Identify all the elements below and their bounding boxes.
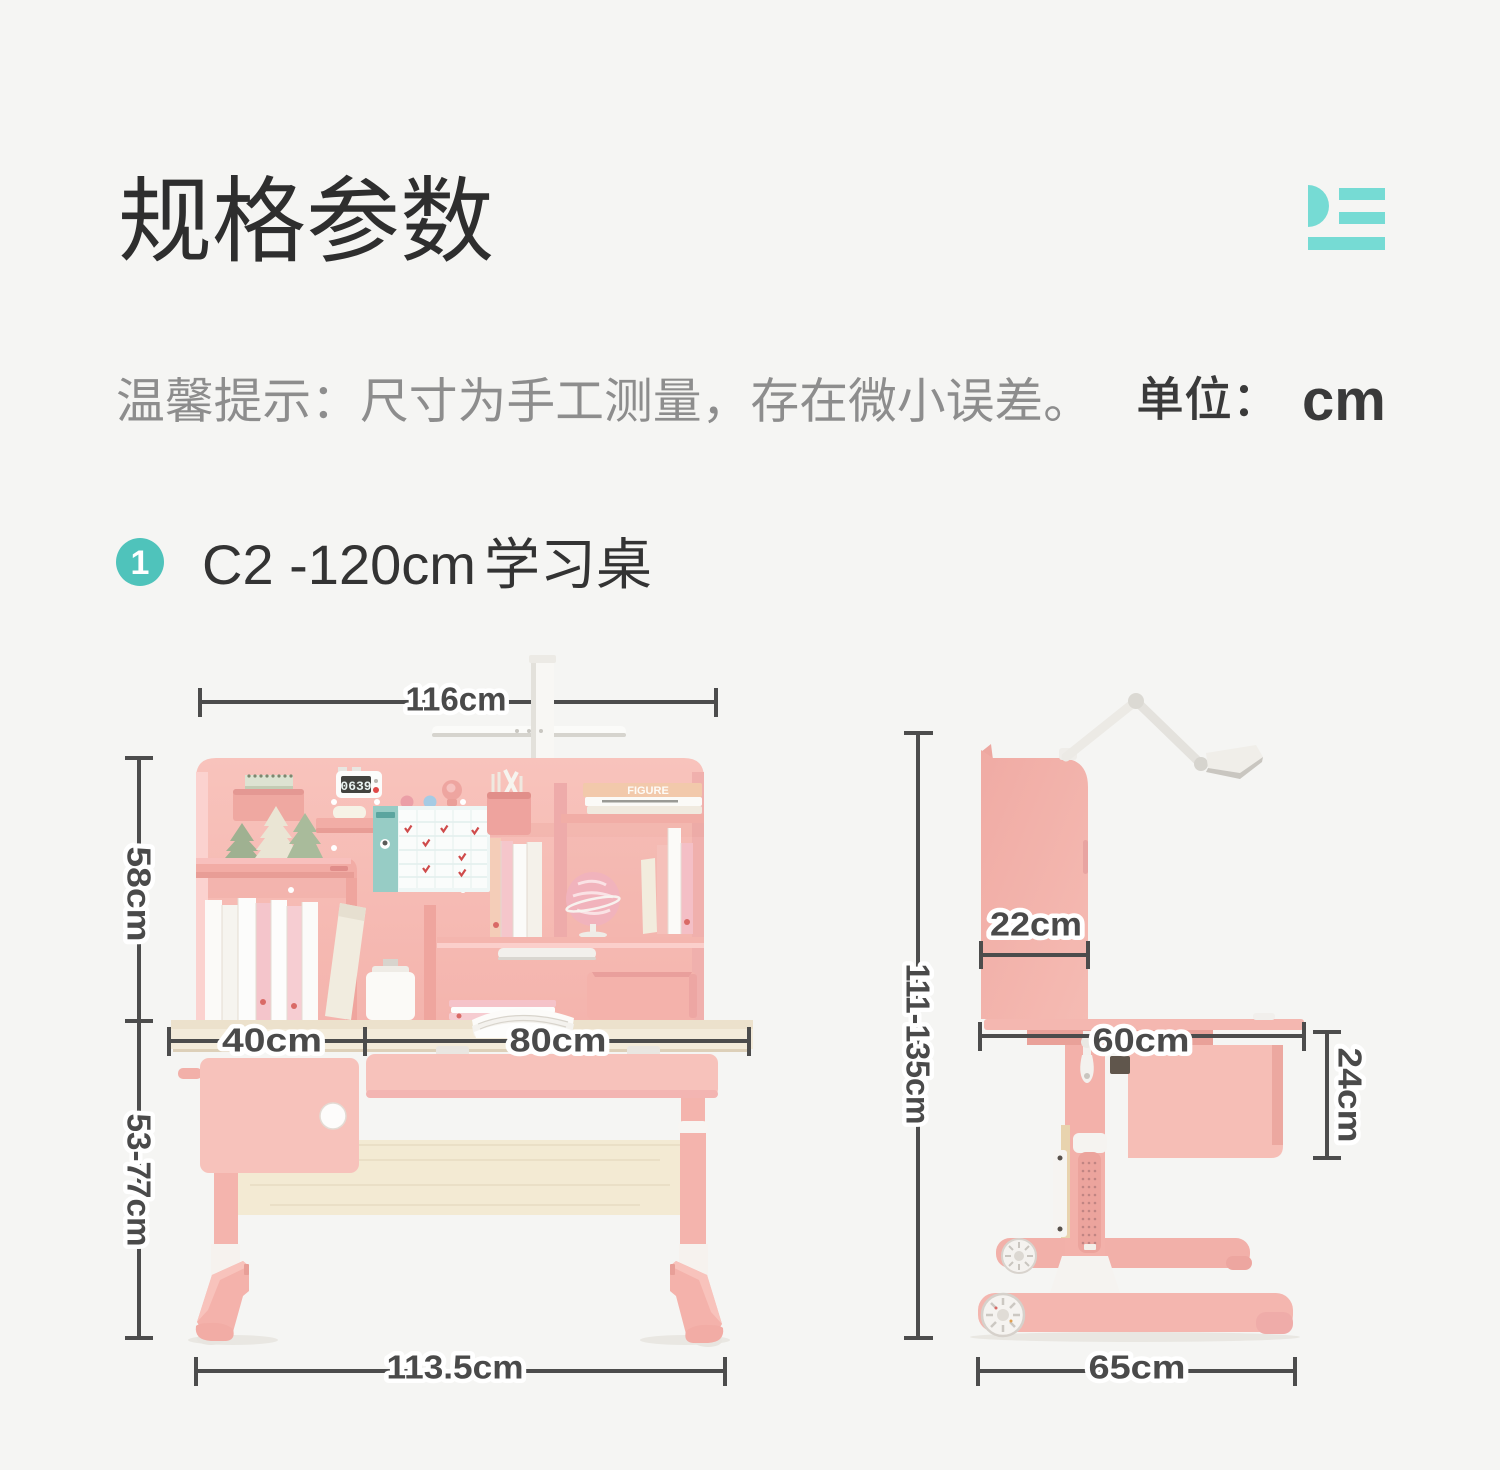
svg-text:40cm: 40cm xyxy=(222,1022,322,1059)
svg-text:53-77cm: 53-77cm xyxy=(121,1114,158,1247)
svg-text:80cm: 80cm xyxy=(510,1022,607,1059)
svg-text:111-135cm: 111-135cm xyxy=(900,964,937,1125)
svg-text:60cm: 60cm xyxy=(1093,1022,1190,1059)
svg-text:65cm: 65cm xyxy=(1089,1349,1186,1386)
svg-text:cm: cm xyxy=(1302,368,1386,433)
svg-text:C2 -120cm: C2 -120cm xyxy=(202,533,476,596)
svg-text:24cm: 24cm xyxy=(1332,1048,1369,1143)
svg-text:1: 1 xyxy=(131,544,150,582)
svg-text:58cm: 58cm xyxy=(121,847,158,942)
svg-text:22cm: 22cm xyxy=(990,906,1082,943)
svg-text:0639: 0639 xyxy=(340,779,371,794)
svg-text:116cm: 116cm xyxy=(406,681,507,718)
svg-text:FIGURE: FIGURE xyxy=(627,785,669,797)
svg-text:113.5cm: 113.5cm xyxy=(387,1349,524,1386)
